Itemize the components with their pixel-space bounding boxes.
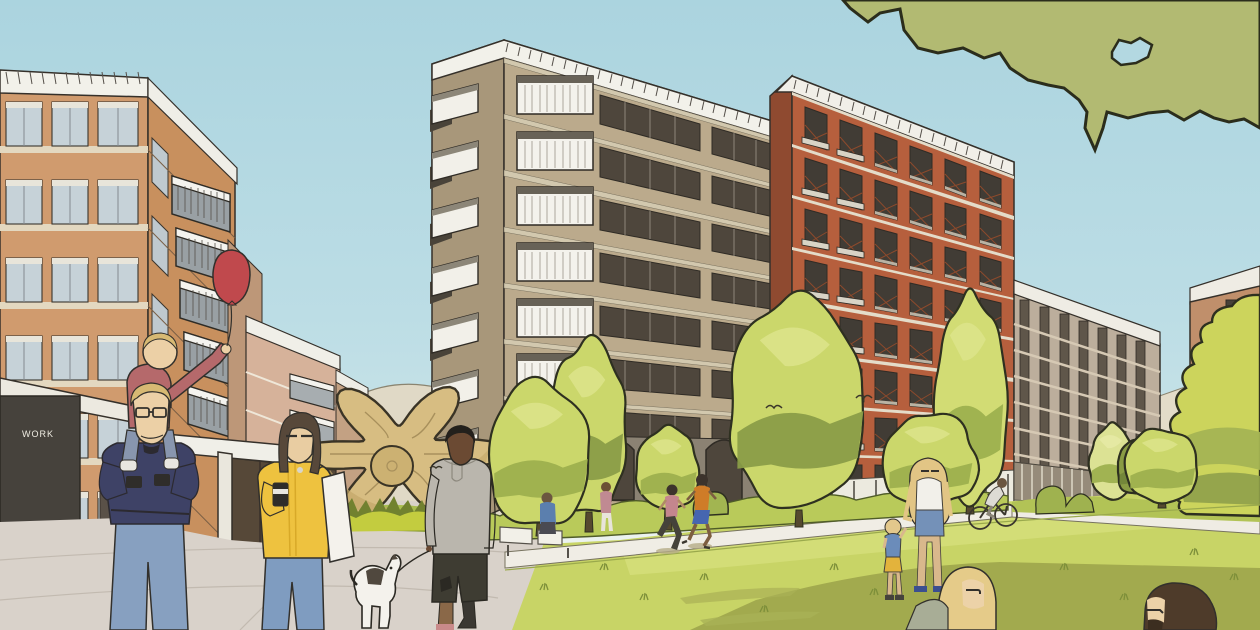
svg-text:WORK: WORK (22, 429, 54, 439)
